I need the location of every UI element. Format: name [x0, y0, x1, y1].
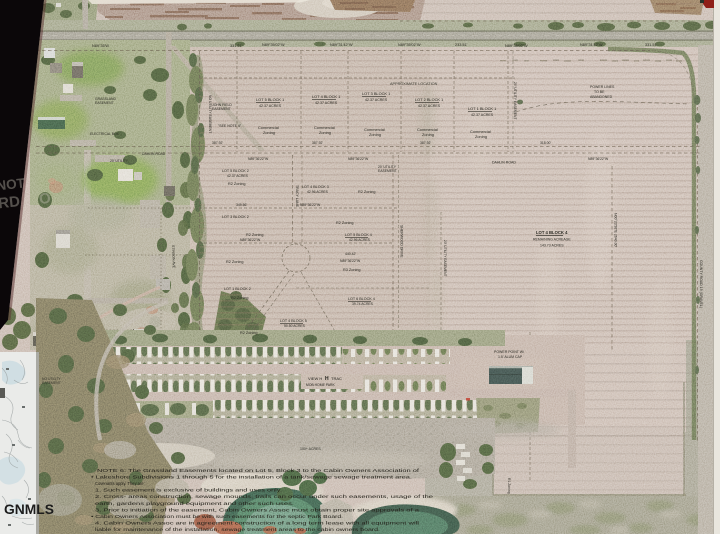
svg-text:• Lakeshore Subdivisions 1 thr: • Lakeshore Subdivisions 1 through 5 for…: [91, 475, 412, 480]
svg-text:NOTE 6: The Grassland Easement: NOTE 6: The Grassland Easements located …: [97, 468, 421, 473]
svg-text:LOT 3 BLOCK 1: LOT 3 BLOCK 1: [362, 91, 390, 96]
svg-text:N89°31'42"W: N89°31'42"W: [580, 43, 603, 47]
svg-text:EASEMENT: EASEMENT: [212, 107, 231, 111]
svg-text:Covenants apply. They are:: Covenants apply. They are:: [95, 481, 145, 486]
svg-text:• Cabin Owners Association mus: • Cabin Owners Association must be with …: [91, 514, 343, 519]
svg-text:100+ ACRES: 100+ ACRES: [300, 447, 321, 451]
svg-text:LOT 1 BLOCK 2: LOT 1 BLOCK 2: [224, 287, 251, 291]
svg-text:RD: RD: [0, 193, 21, 212]
svg-text:331.51': 331.51': [230, 44, 243, 48]
svg-text:LOT 6 BLOCK 4: LOT 6 BLOCK 4: [348, 297, 375, 301]
svg-text:ELECTRICAL BOX: ELECTRICAL BOX: [90, 132, 120, 136]
svg-text:LOT 5 BLOCK 4: LOT 5 BLOCK 4: [345, 233, 372, 237]
svg-text:2. Cross- areas construction,: 2. Cross- areas construction, sewage mou…: [95, 494, 434, 499]
svg-text:20' UTILITY: 20' UTILITY: [110, 159, 129, 163]
svg-text:LOT 5 BLOCK 2: LOT 5 BLOCK 2: [222, 169, 249, 173]
svg-text:42.37 ACRES: 42.37 ACRES: [259, 104, 282, 108]
svg-text:LOT 2 BLOCK 1: LOT 2 BLOCK 1: [415, 97, 443, 102]
svg-text:N89°35'02"W: N89°35'02"W: [505, 44, 528, 48]
svg-text:R2 Zoning: R2 Zoning: [246, 233, 264, 237]
svg-text:440.42': 440.42': [345, 252, 356, 256]
svg-text:N00°23'38"E 2640.00': N00°23'38"E 2640.00': [614, 213, 618, 247]
svg-text:ABANDONED: ABANDONED: [590, 95, 613, 99]
svg-text:20' UTILITY EASEMENT: 20' UTILITY EASEMENT: [513, 82, 517, 120]
svg-text:Zoning: Zoning: [369, 132, 381, 137]
svg-text:3. Prior to initiation of the: 3. Prior to initiation of the easement, …: [95, 507, 420, 512]
svg-text:50.50 ACRES: 50.50 ACRES: [284, 324, 306, 328]
svg-text:N89°35'W: N89°35'W: [92, 44, 109, 48]
svg-text:LOT 3 BLOCK 2: LOT 3 BLOCK 2: [222, 215, 249, 219]
svg-text:TRACY LANE: TRACY LANE: [295, 185, 299, 208]
svg-text:COUNTY ROAD 19 (GRAVEL): COUNTY ROAD 19 (GRAVEL): [699, 260, 703, 308]
svg-text:MOB HOME PARK: MOB HOME PARK: [306, 383, 335, 387]
svg-text:42.37 ACRES: 42.37 ACRES: [227, 174, 249, 178]
svg-text:R1 Zoning: R1 Zoning: [507, 478, 511, 494]
svg-text:EASEMENT: EASEMENT: [95, 101, 114, 105]
svg-text:R2 Zoning: R2 Zoning: [240, 331, 258, 335]
svg-text:233.51': 233.51': [455, 43, 468, 47]
svg-text:NOT: NOT: [0, 175, 26, 193]
svg-text:N89°31'42"W: N89°31'42"W: [330, 43, 353, 47]
svg-text:H: H: [325, 376, 329, 382]
svg-text:42.37 ACRES: 42.37 ACRES: [365, 98, 388, 102]
svg-text:EASEMENT: EASEMENT: [42, 381, 61, 385]
svg-text:LOT 4 BLOCK 3: LOT 4 BLOCK 3: [302, 185, 329, 189]
svg-text:Zoning: Zoning: [319, 130, 331, 135]
svg-text:POWER POINT W/: POWER POINT W/: [494, 350, 524, 354]
svg-text:143.73 ACRES: 143.73 ACRES: [540, 244, 564, 248]
svg-text:R2 Zoning: R2 Zoning: [226, 260, 244, 264]
svg-text:DAHLIN ROAD: DAHLIN ROAD: [492, 161, 516, 165]
svg-text:Zoning: Zoning: [475, 134, 487, 139]
svg-text:O: O: [38, 190, 52, 208]
svg-text:318.00': 318.00': [540, 141, 551, 145]
svg-text:N89°36'22"W: N89°36'22"W: [588, 157, 609, 161]
svg-text:387.92': 387.92': [212, 141, 223, 145]
svg-text:N89°36'22"W: N89°36'22"W: [248, 157, 269, 161]
svg-text:TO BE: TO BE: [594, 90, 605, 94]
svg-text:"SEE NOTE 4": "SEE NOTE 4": [218, 124, 242, 128]
svg-text:R2 Zoning: R2 Zoning: [231, 296, 249, 300]
svg-text:LOT 1 BLOCK 1: LOT 1 BLOCK 1: [468, 106, 496, 111]
svg-text:liable for maintenance of the: liable for maintenance of the installati…: [95, 527, 380, 532]
svg-text:R2 Zoning: R2 Zoning: [228, 182, 246, 186]
svg-text:STINSON AVE: STINSON AVE: [171, 245, 176, 269]
svg-text:R3 Zoning: R3 Zoning: [343, 268, 361, 272]
svg-text:EASEMENT: EASEMENT: [378, 169, 397, 173]
svg-text:1.5' ALUM CAP: 1.5' ALUM CAP: [498, 355, 523, 359]
svg-text:APPROXIMATE LOCATION: APPROXIMATE LOCATION: [390, 82, 438, 86]
svg-text:GNMLS: GNMLS: [4, 502, 54, 517]
svg-text:Zoning: Zoning: [263, 130, 275, 135]
svg-text:42.96 ACRES: 42.96 ACRES: [349, 238, 371, 242]
svg-text:39.74 ACRES: 39.74 ACRES: [352, 302, 374, 306]
svg-text:POWER LINES: POWER LINES: [590, 85, 615, 89]
svg-text:42.96 ACRES: 42.96 ACRES: [307, 190, 329, 194]
svg-text:N89°36'22"W: N89°36'22"W: [340, 259, 361, 263]
svg-text:20' UTILITY EASEMENT: 20' UTILITY EASEMENT: [443, 240, 447, 276]
svg-text:DAHLIN ROAD: DAHLIN ROAD: [142, 152, 166, 156]
svg-text:NO UTILITY EASEMENT: NO UTILITY EASEMENT: [208, 95, 212, 133]
svg-text:LOT 4 BLOCK 5: LOT 4 BLOCK 5: [280, 319, 307, 323]
svg-text:R2 Zoning: R2 Zoning: [358, 190, 376, 194]
svg-text:earth, gardens playground equi: earth, gardens playground equipment and …: [95, 501, 294, 506]
svg-text:387.92': 387.92': [420, 141, 431, 145]
svg-text:REMAINING ACREAGE: REMAINING ACREAGE: [533, 238, 571, 242]
svg-text:LOT 4 BLOCK 1: LOT 4 BLOCK 1: [312, 94, 340, 99]
svg-text:N89°36'22"W: N89°36'22"W: [240, 238, 261, 242]
svg-text:42.37 ACRES: 42.37 ACRES: [315, 101, 338, 105]
svg-text:N89°36'22"W: N89°36'22"W: [300, 203, 321, 207]
svg-text:387.92': 387.92': [312, 141, 323, 145]
svg-text:TRAC: TRAC: [331, 376, 342, 381]
svg-text:LOT 5 BLOCK 1: LOT 5 BLOCK 1: [256, 97, 284, 102]
svg-text:SHERWOOD DRIVE: SHERWOOD DRIVE: [400, 225, 404, 258]
svg-text:349.56': 349.56': [236, 203, 247, 207]
svg-text:Zoning: Zoning: [422, 132, 434, 137]
svg-text:4. Cabin Owners Assoc are in a: 4. Cabin Owners Assoc are in agreement c…: [95, 521, 419, 526]
svg-text:331.51': 331.51': [645, 43, 658, 47]
svg-text:R2 Zoning: R2 Zoning: [336, 221, 354, 225]
svg-text:VIEW H: VIEW H: [308, 376, 322, 381]
svg-text:N89°35'02"W: N89°35'02"W: [262, 43, 285, 47]
svg-text:42.37 ACRES: 42.37 ACRES: [418, 104, 441, 108]
svg-text:LOT 4 BLOCK 4: LOT 4 BLOCK 4: [536, 230, 568, 235]
svg-text:1. Such easement is exclusive: 1. Such easement is exclusive of buildin…: [95, 488, 282, 493]
svg-text:N89°36'22"W: N89°36'22"W: [348, 157, 369, 161]
svg-text:42.37 ACRES: 42.37 ACRES: [471, 113, 494, 117]
svg-text:N89°35'02"W: N89°35'02"W: [398, 43, 421, 47]
